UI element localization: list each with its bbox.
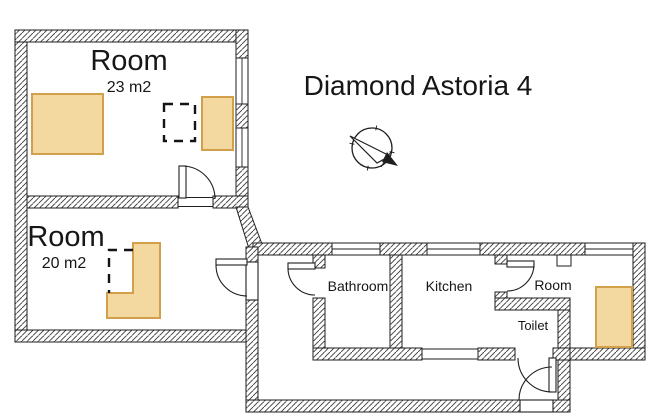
floor-plan: Diamond Astoria 4 Room 23 m2 Room 20 m2 … <box>0 0 650 420</box>
room-small-label: Room <box>534 277 571 293</box>
window-room-small <box>585 243 633 255</box>
room20-area: 20 m2 <box>42 255 87 272</box>
plan-title: Diamond Astoria 4 <box>304 70 533 101</box>
room23-doorway-threshold <box>178 198 213 207</box>
bed-room23 <box>32 94 103 154</box>
desk-room23 <box>202 97 233 150</box>
window-bathroom <box>332 243 380 255</box>
door-room23 <box>179 166 215 199</box>
corner-sofa-room20 <box>107 243 160 318</box>
door-bathroom <box>288 263 315 295</box>
room23-area: 23 m2 <box>107 79 152 96</box>
bed-room-small <box>596 287 632 347</box>
door-toilet <box>518 358 556 392</box>
room23-label: Room <box>90 45 167 77</box>
floor-plan-page: Diamond Astoria 4 Room 23 m2 Room 20 m2 … <box>0 0 650 420</box>
chimney-notch <box>557 255 571 266</box>
door-kitchen <box>507 261 534 291</box>
sofa-dashed-room20 <box>109 250 133 293</box>
kitchen-opening <box>422 349 478 359</box>
window-room23-lower <box>236 128 248 167</box>
window-room23-upper <box>236 58 248 104</box>
window-kitchen <box>427 243 480 255</box>
door-entrance <box>519 367 553 412</box>
bathroom-label: Bathroom <box>328 278 389 294</box>
door-room20 <box>216 259 258 300</box>
compass-icon <box>345 121 400 176</box>
table-dashed-room23 <box>164 104 195 141</box>
room20-label: Room <box>27 221 104 253</box>
kitchen-label: Kitchen <box>426 278 473 294</box>
toilet-label: Toilet <box>518 318 549 333</box>
